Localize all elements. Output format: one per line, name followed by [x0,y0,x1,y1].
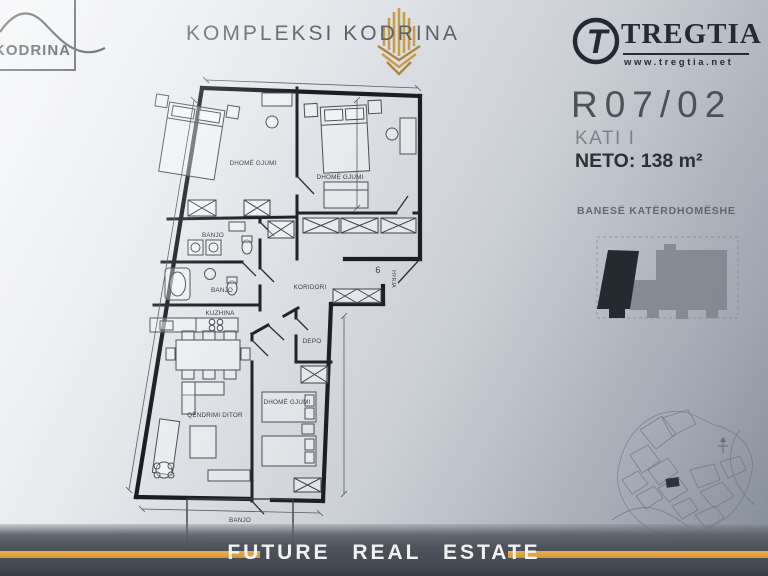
tregtia-logo-icon: T [575,20,617,62]
entrance-label: HYRJA [390,270,396,288]
unit-net-area: NETO: 138 m² [575,150,703,173]
room-label-bath-2: BANJO [211,287,233,294]
plant [154,462,174,478]
unit-code: R07/02 [571,84,732,126]
tregtia-monogram: T [587,23,611,61]
room-label-living: QËNDRIMI DITOR [187,411,243,419]
building-footprint [597,237,738,319]
room-label-bath-1: BANJO [202,232,224,239]
bed-1 [145,94,240,182]
entrance-number: 6 [375,265,380,275]
footer-brand: FUTURE REAL ESTATE [0,541,768,565]
tregtia-divider [623,53,749,55]
room-label-balcony: BANJO [229,517,251,524]
room-label-storage: DEPO [303,338,322,345]
footprint-building-mass [630,244,727,319]
kodrina-logo-label: KODRINA [0,42,71,59]
north-arrow-icon [718,437,728,453]
entry-steps [333,289,381,303]
room-label-bedroom-2: DHOMË GJUMI [317,173,364,181]
unit-floor: KATI I [575,128,635,150]
tregtia-url: www.tregtia.net [624,57,733,68]
kodrina-logo-box [0,0,76,71]
bed-2 [304,100,385,174]
room-label-bedroom-1: DHOMË GJUMI [230,159,277,167]
apartment-type: BANESË KATËRDHOMËSHE [577,205,736,217]
complex-title: KOMPLEKSI KODRINA [186,22,460,46]
floor-plan: DHOMË GJUMI DHOMË GJUMI BANJO BANJO KUZH… [126,77,421,544]
site-highlighted-building [666,477,680,488]
room-label-corridor: KORIDORI [294,284,327,291]
tregtia-wordmark: TREGTIA [621,18,762,51]
room-label-kitchen: KUZHINA [205,310,235,317]
room-label-bedroom-3: DHOMË GJUMI [264,398,311,406]
footprint-highlighted-tab [609,309,625,318]
